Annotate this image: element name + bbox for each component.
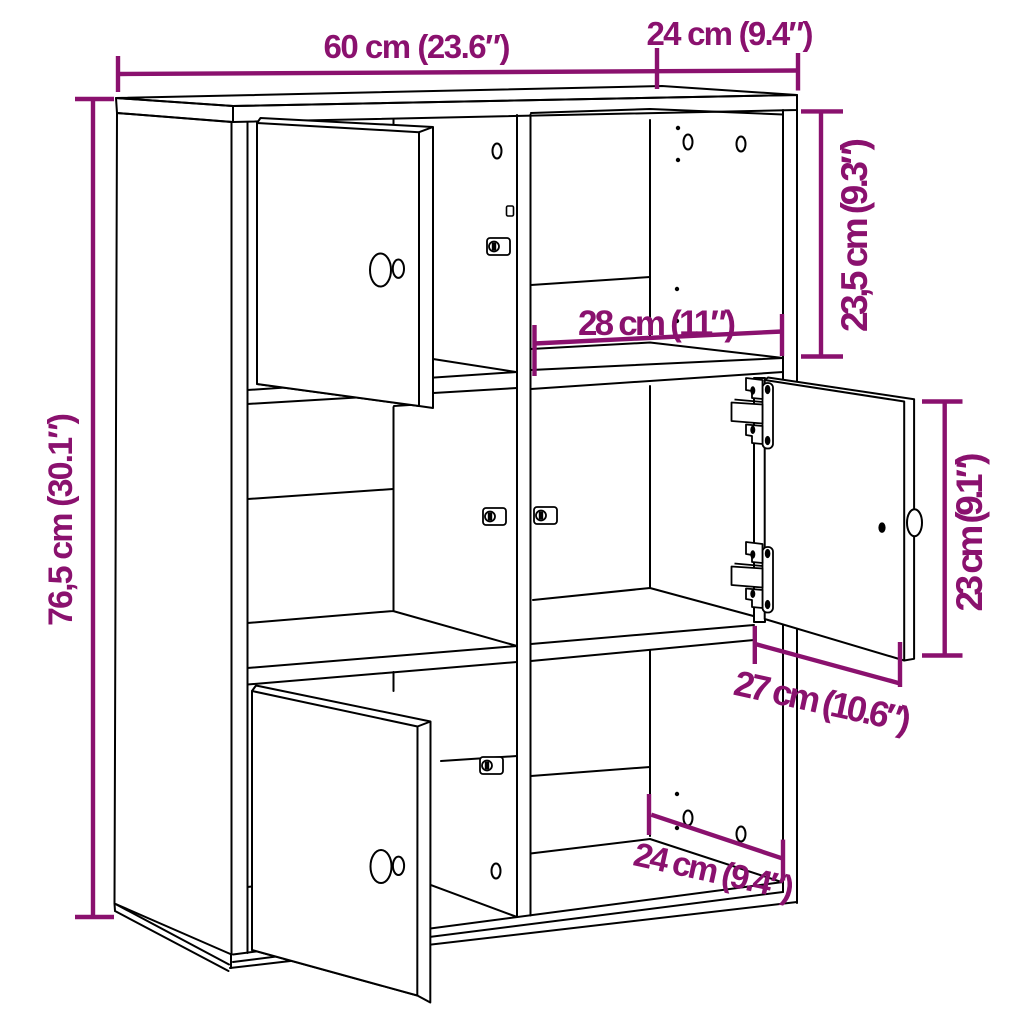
svg-text:23,5 cm (9.3″): 23,5 cm (9.3″) — [834, 138, 875, 332]
svg-text:28 cm (11″): 28 cm (11″) — [578, 304, 736, 343]
svg-text:24 cm (9.4″): 24 cm (9.4″) — [647, 15, 814, 52]
svg-text:76,5 cm (30.1″): 76,5 cm (30.1″) — [42, 413, 80, 626]
svg-text:23 cm (9.1″): 23 cm (9.1″) — [949, 453, 990, 612]
svg-text:60 cm (23.6″): 60 cm (23.6″) — [324, 28, 511, 65]
